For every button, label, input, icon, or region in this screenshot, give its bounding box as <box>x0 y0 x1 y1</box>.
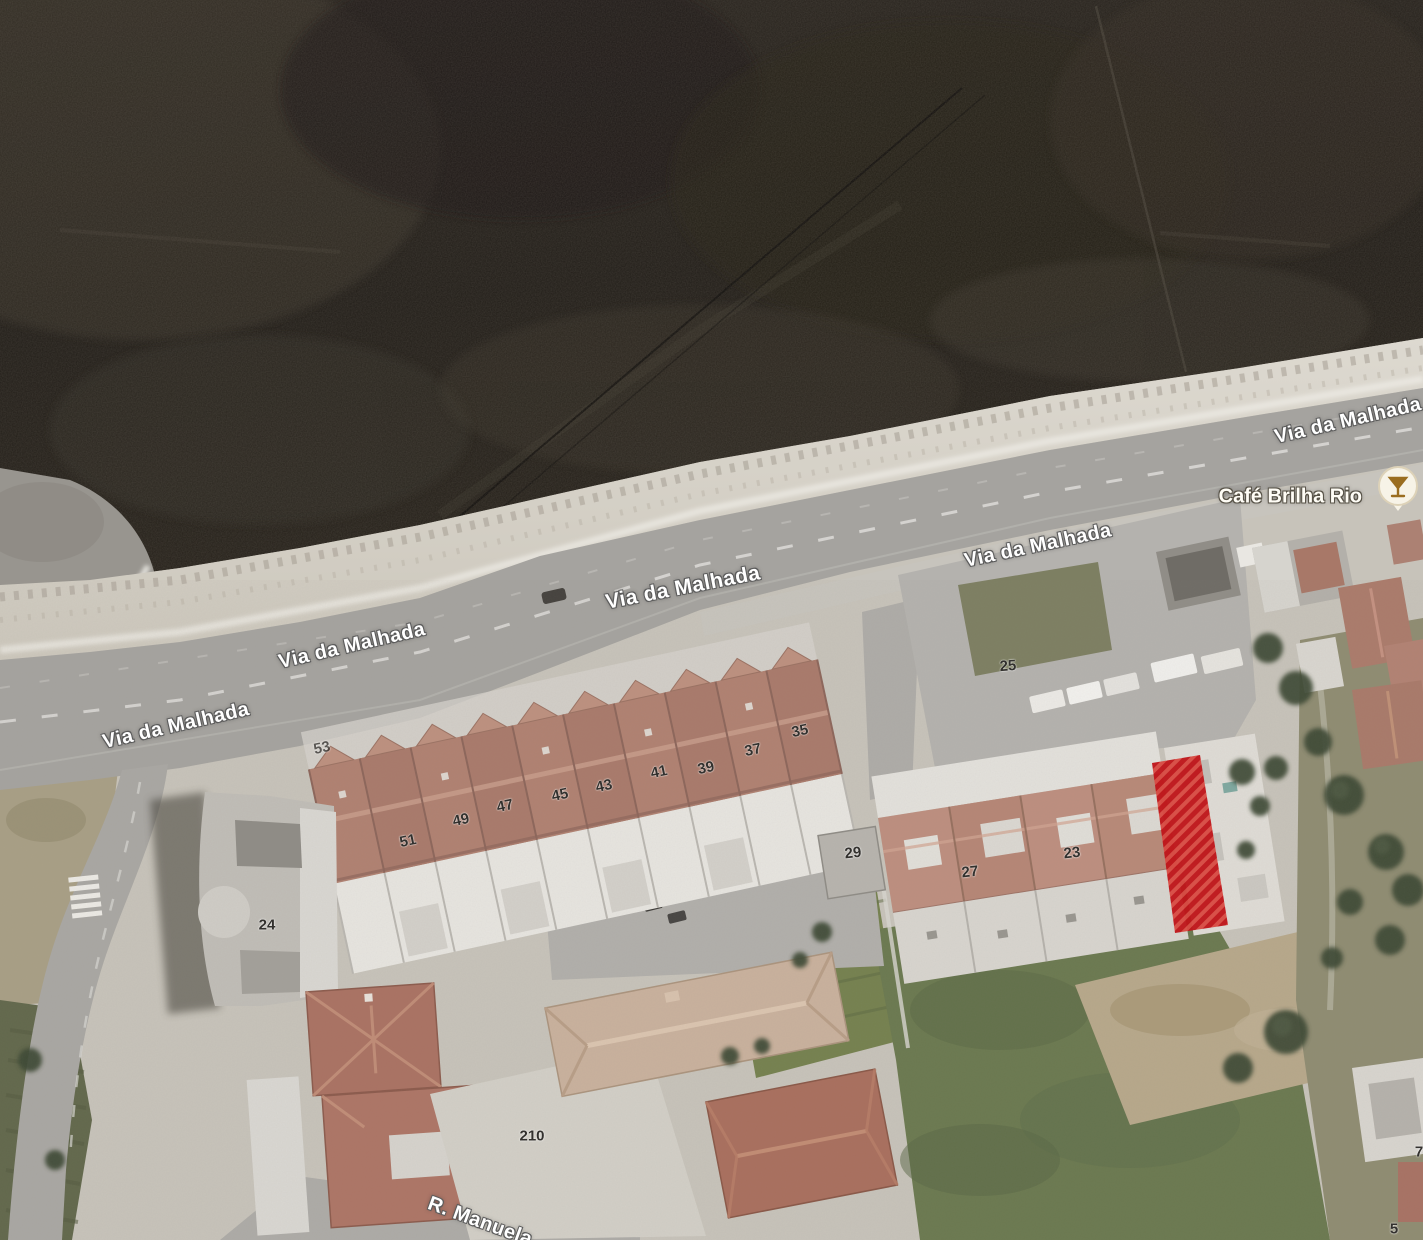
satellite-canvas <box>0 0 1423 1240</box>
drink-icon[interactable] <box>1376 465 1420 515</box>
satellite-map[interactable]: Via da MalhadaVia da MalhadaVia da Malha… <box>0 0 1423 1240</box>
